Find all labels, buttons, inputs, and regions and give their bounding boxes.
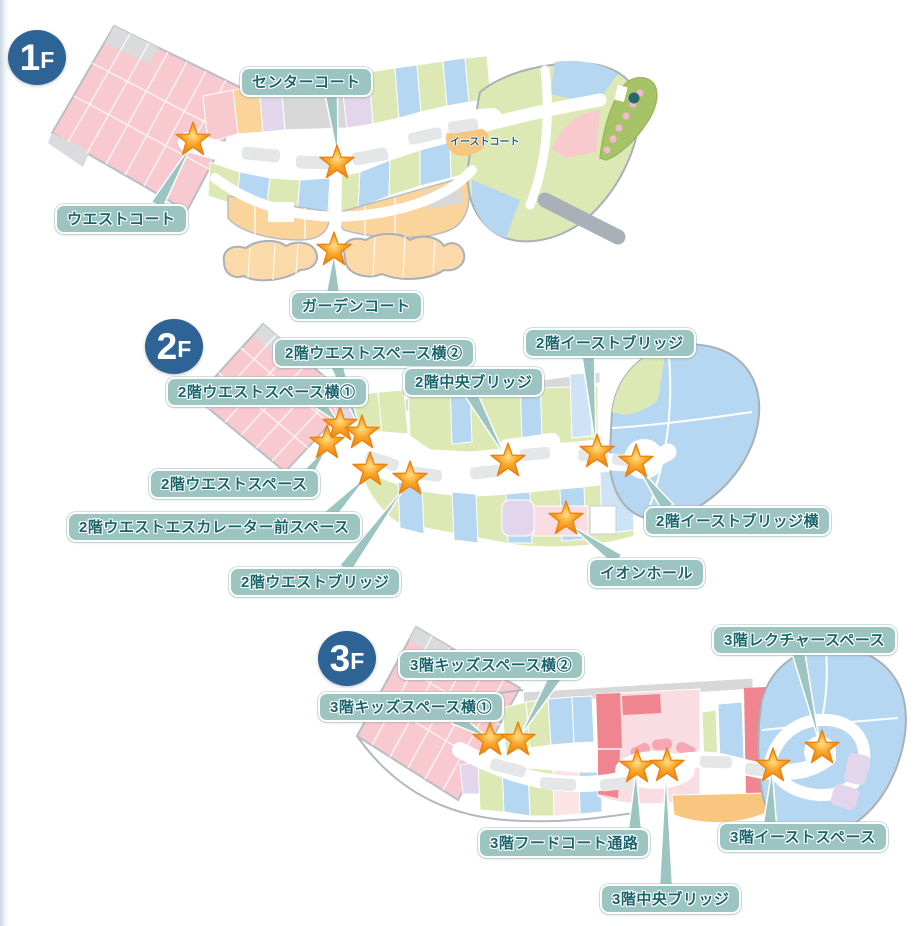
callout-label: 3階フードコート通路 xyxy=(478,828,650,858)
callout-label: 2階イーストブリッジ xyxy=(524,328,696,358)
star-marker-icon xyxy=(580,434,614,467)
star-marker-icon xyxy=(619,444,653,477)
callout-label: センターコート xyxy=(240,67,373,97)
floor-badge-1f: 1F xyxy=(8,30,66,85)
callout-label: 2階中央ブリッジ xyxy=(403,367,544,397)
star-marker-icon xyxy=(501,722,535,755)
map-area-label: イーストコート xyxy=(450,133,520,148)
floor-number: 3 xyxy=(330,640,351,677)
star-marker-icon xyxy=(393,461,427,494)
callout-label: 2階ウエストエスカレーター前スペース xyxy=(67,512,362,542)
floor-suffix: F xyxy=(177,338,191,361)
floor-badge-3f: 3F xyxy=(318,631,376,686)
callout-tail xyxy=(792,650,820,745)
star-marker-icon xyxy=(473,722,507,755)
floor-number: 2 xyxy=(157,328,178,365)
callout-label: ウエストコート xyxy=(55,204,188,234)
floor-badge-2f: 2F xyxy=(145,319,203,374)
floor-number: 1 xyxy=(20,39,41,76)
floor-suffix: F xyxy=(40,49,54,72)
star-marker-icon xyxy=(320,145,354,178)
callout-label: 3階イーストスペース xyxy=(718,822,888,852)
floor-suffix: F xyxy=(350,650,364,673)
callout-label: 3階中央ブリッジ xyxy=(600,884,741,914)
callout-tail xyxy=(464,389,506,458)
callout-label: 2階イーストブリッジ横 xyxy=(644,506,831,536)
callout-label: 3階キッズスペース横② xyxy=(398,650,584,680)
callout-tail xyxy=(519,673,562,738)
callout-label: ガーデンコート xyxy=(290,291,423,321)
callout-label: 2階ウエストスペース横② xyxy=(273,338,475,368)
star-marker-icon xyxy=(176,122,210,155)
callout-label: 2階ウエストスペース横① xyxy=(166,377,368,407)
star-marker-icon xyxy=(491,443,525,476)
callout-label: 2階ウエストブリッジ xyxy=(229,567,401,597)
star-marker-icon xyxy=(353,452,387,485)
callout-label: 3階レクチャースペース xyxy=(712,625,897,655)
mall-floor-maps-page: 1Fセンターコートウエストコートガーデンコートイーストコート2F2階ウエストスペ… xyxy=(0,0,919,926)
star-marker-icon xyxy=(805,730,839,763)
callout-tail xyxy=(660,769,673,885)
callout-label: 3階キッズスペース横① xyxy=(318,692,504,722)
callout-tail xyxy=(582,352,596,449)
callout-label: イオンホール xyxy=(588,558,705,588)
callout-tail xyxy=(151,144,192,208)
callout-label: 2階ウエストスペース xyxy=(149,469,320,499)
